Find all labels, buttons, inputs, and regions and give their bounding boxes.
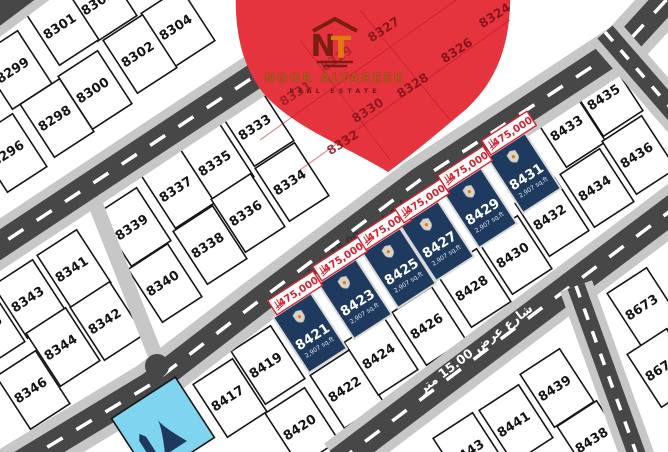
street-bulge	[145, 354, 169, 378]
map-canvas: 8303830182998304830283008298829683338335…	[0, 0, 668, 452]
subdivision-map-svg: 8303830182998304830283008298829683338335…	[0, 0, 668, 452]
